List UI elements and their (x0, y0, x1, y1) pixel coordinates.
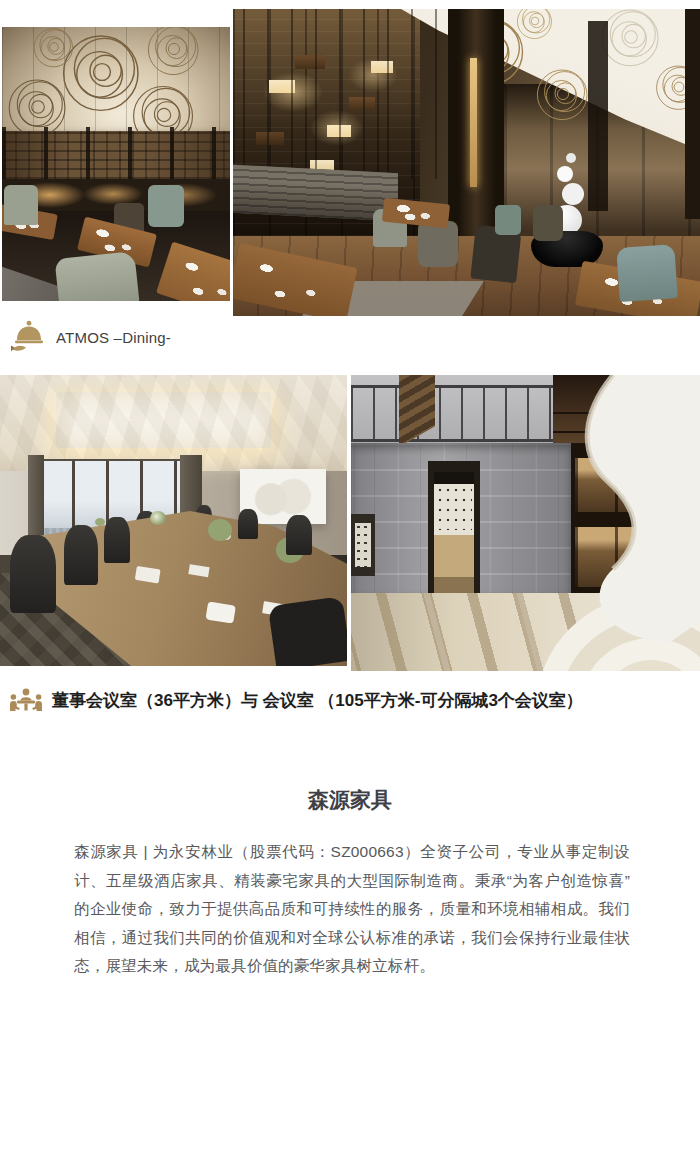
conference-chair (238, 509, 258, 539)
photo-dining-room-left[interactable] (2, 27, 230, 301)
sphere-sculpture (525, 137, 609, 267)
dining-caption-text: ATMOS –Dining- (56, 329, 171, 346)
photo-dining-room-right[interactable] (233, 9, 700, 316)
company-description: 森源家具 | 为永安林业（股票代码：SZ000663）全资子公司，专业从事定制设… (74, 838, 630, 981)
hanging-rods (243, 9, 443, 179)
teal-armchair (495, 205, 521, 235)
photo-lobby-staircase[interactable] (351, 375, 700, 671)
conference-chair (10, 535, 56, 613)
article-page: ATMOS –Dining- (0, 0, 700, 1152)
teal-armchair (616, 244, 678, 302)
meeting-caption: 董事会议室（36平方米）与 会议室 （105平方米-可分隔城3个会议室） (8, 681, 583, 719)
dining-chair (148, 185, 184, 227)
door-frame (685, 9, 700, 219)
photo-boardroom[interactable] (0, 375, 347, 666)
company-title: 森源家具 (0, 786, 700, 814)
spiral-staircase (351, 375, 700, 671)
conference-chair (268, 596, 347, 666)
dining-chair (418, 221, 458, 267)
dining-chair (533, 205, 563, 241)
meeting-caption-text: 董事会议室（36平方米）与 会议室 （105平方米-可分隔城3个会议室） (52, 689, 583, 712)
meeting-people-icon (8, 684, 44, 716)
dining-chair (4, 185, 38, 225)
conference-chair (104, 517, 130, 563)
coffered-ceiling (0, 375, 347, 471)
conference-chair (64, 525, 98, 585)
dining-chair (55, 251, 140, 301)
cloche-serving-icon (10, 320, 46, 354)
flower-centerpieces (150, 511, 166, 525)
dining-caption: ATMOS –Dining- (10, 318, 171, 356)
conference-chair (286, 515, 312, 555)
